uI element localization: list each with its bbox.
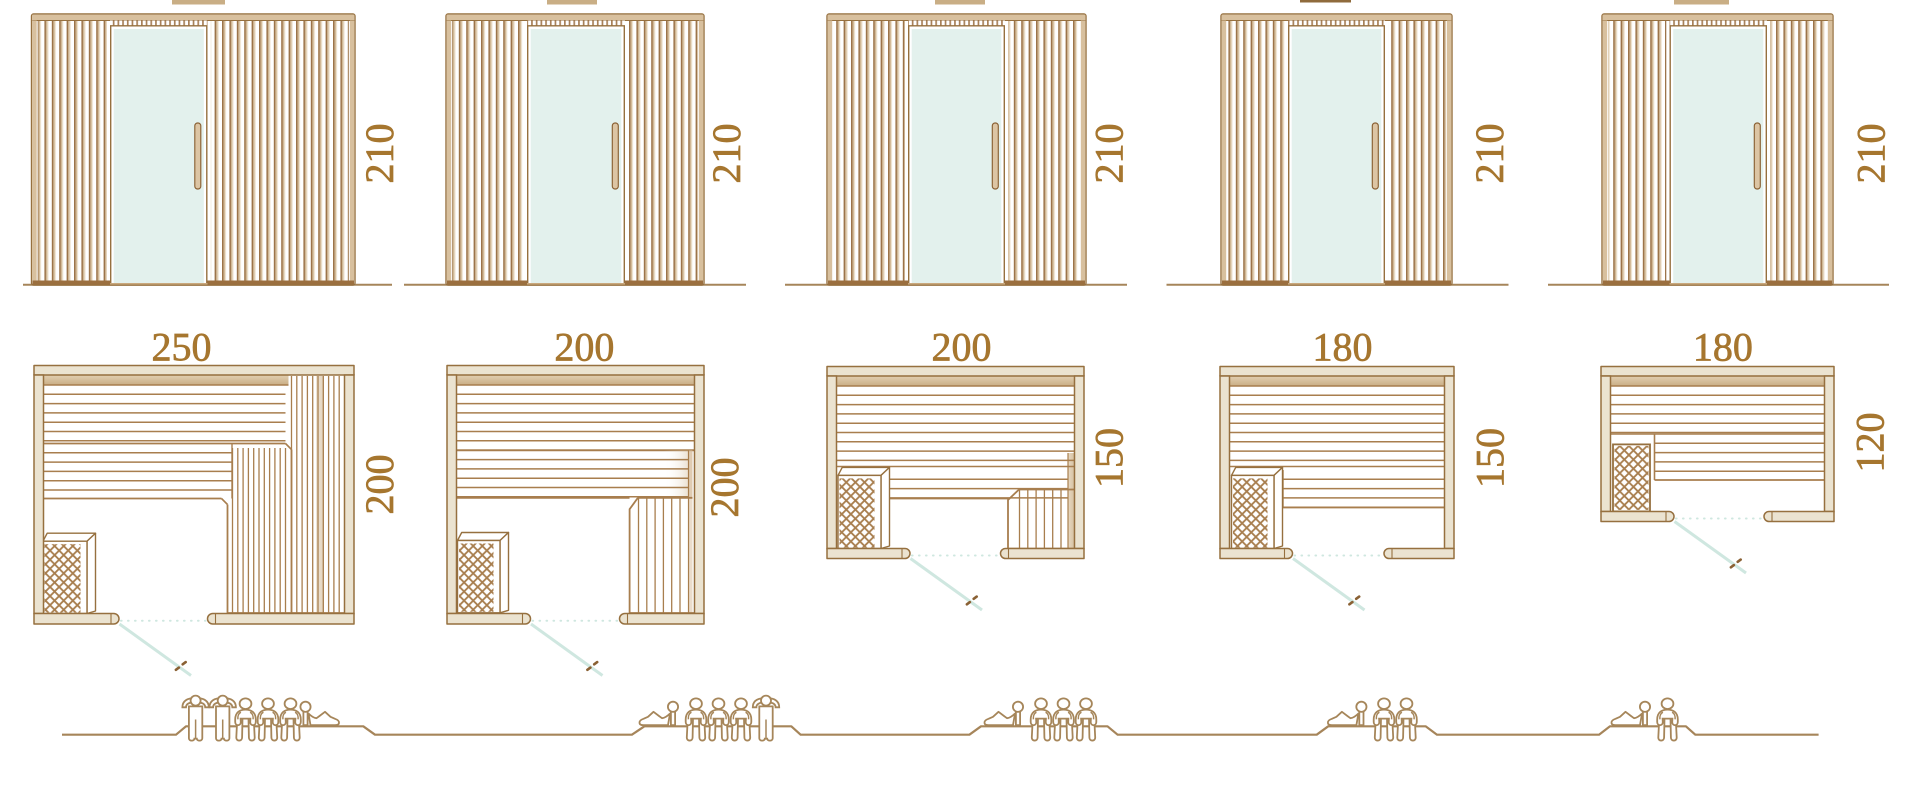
svg-text:200: 200 — [554, 324, 614, 369]
svg-text:250: 250 — [152, 324, 212, 369]
svg-text:150: 150 — [1468, 428, 1513, 488]
svg-text:200: 200 — [702, 458, 747, 518]
svg-text:210: 210 — [357, 124, 402, 184]
svg-text:180: 180 — [1313, 324, 1373, 369]
svg-text:180: 180 — [1693, 324, 1753, 369]
svg-text:210: 210 — [1849, 124, 1894, 184]
svg-text:120: 120 — [1848, 413, 1893, 473]
svg-text:210: 210 — [1087, 124, 1132, 184]
svg-text:150: 150 — [1087, 428, 1132, 488]
svg-text:210: 210 — [1467, 124, 1512, 184]
svg-text:200: 200 — [932, 324, 992, 369]
svg-text:200: 200 — [357, 455, 402, 515]
svg-text:210: 210 — [704, 124, 749, 184]
